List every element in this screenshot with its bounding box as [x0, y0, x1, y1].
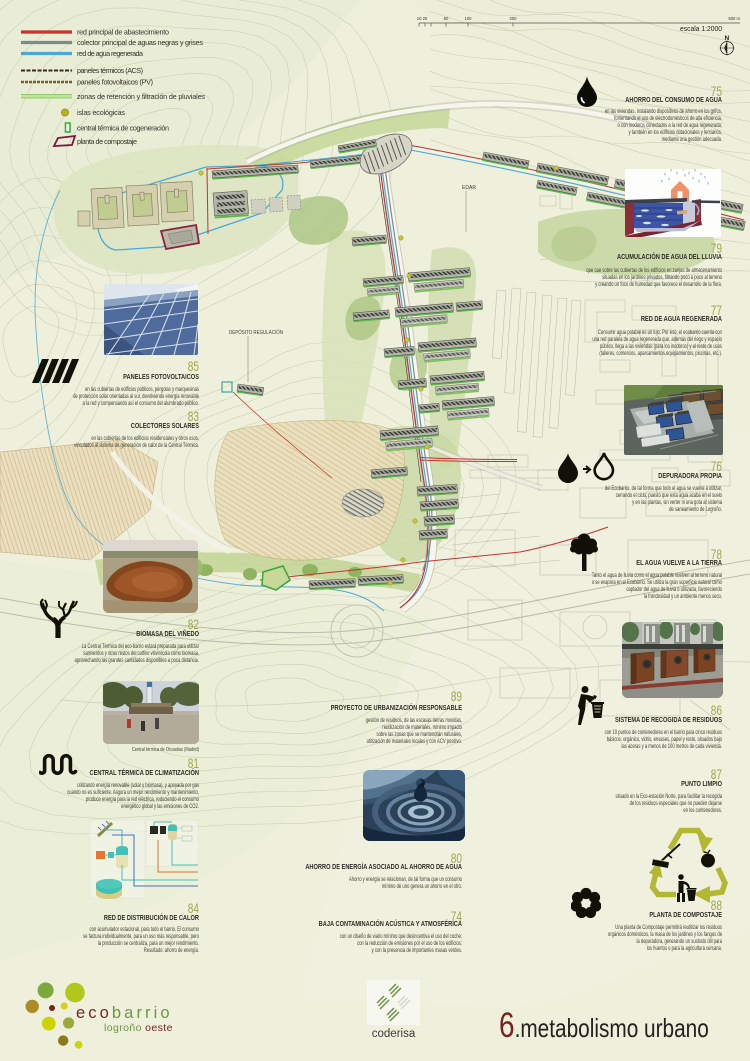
svg-text:50: 50 — [444, 16, 449, 21]
svg-text:coderisa: coderisa — [372, 1028, 416, 1040]
svg-text:central térmica de cogeneració: central térmica de cogeneración — [77, 124, 169, 133]
svg-text:100: 100 — [465, 16, 473, 21]
svg-text:10 20: 10 20 — [417, 16, 428, 21]
svg-text:EDAR: EDAR — [462, 185, 476, 191]
svg-text:escala 1:2000: escala 1:2000 — [680, 26, 722, 33]
svg-text:red de agua regenerada: red de agua regenerada — [77, 49, 143, 58]
svg-text:500 m: 500 m — [728, 16, 740, 21]
svg-text:planta de compostaje: planta de compostaje — [77, 137, 137, 146]
svg-text:logroño oeste: logroño oeste — [104, 1022, 173, 1034]
svg-text:red principal de abastecimient: red principal de abastecimiento — [77, 28, 169, 37]
svg-text:200: 200 — [510, 16, 518, 21]
svg-text:ecobarrio: ecobarrio — [76, 1004, 173, 1022]
svg-text:colector principal de aguas ne: colector principal de aguas negras y gri… — [77, 38, 203, 47]
svg-text:zonas de retención y filtració: zonas de retención y filtración de pluvi… — [77, 92, 205, 101]
svg-text:paneles térmicos (ACS): paneles térmicos (ACS) — [77, 66, 143, 75]
svg-text:paneles fotovoltaicos (PV): paneles fotovoltaicos (PV) — [77, 78, 153, 87]
svg-text:islas ecológicas: islas ecológicas — [77, 108, 125, 117]
svg-text:DEPÓSITO REGULACIÓN: DEPÓSITO REGULACIÓN — [229, 329, 283, 336]
